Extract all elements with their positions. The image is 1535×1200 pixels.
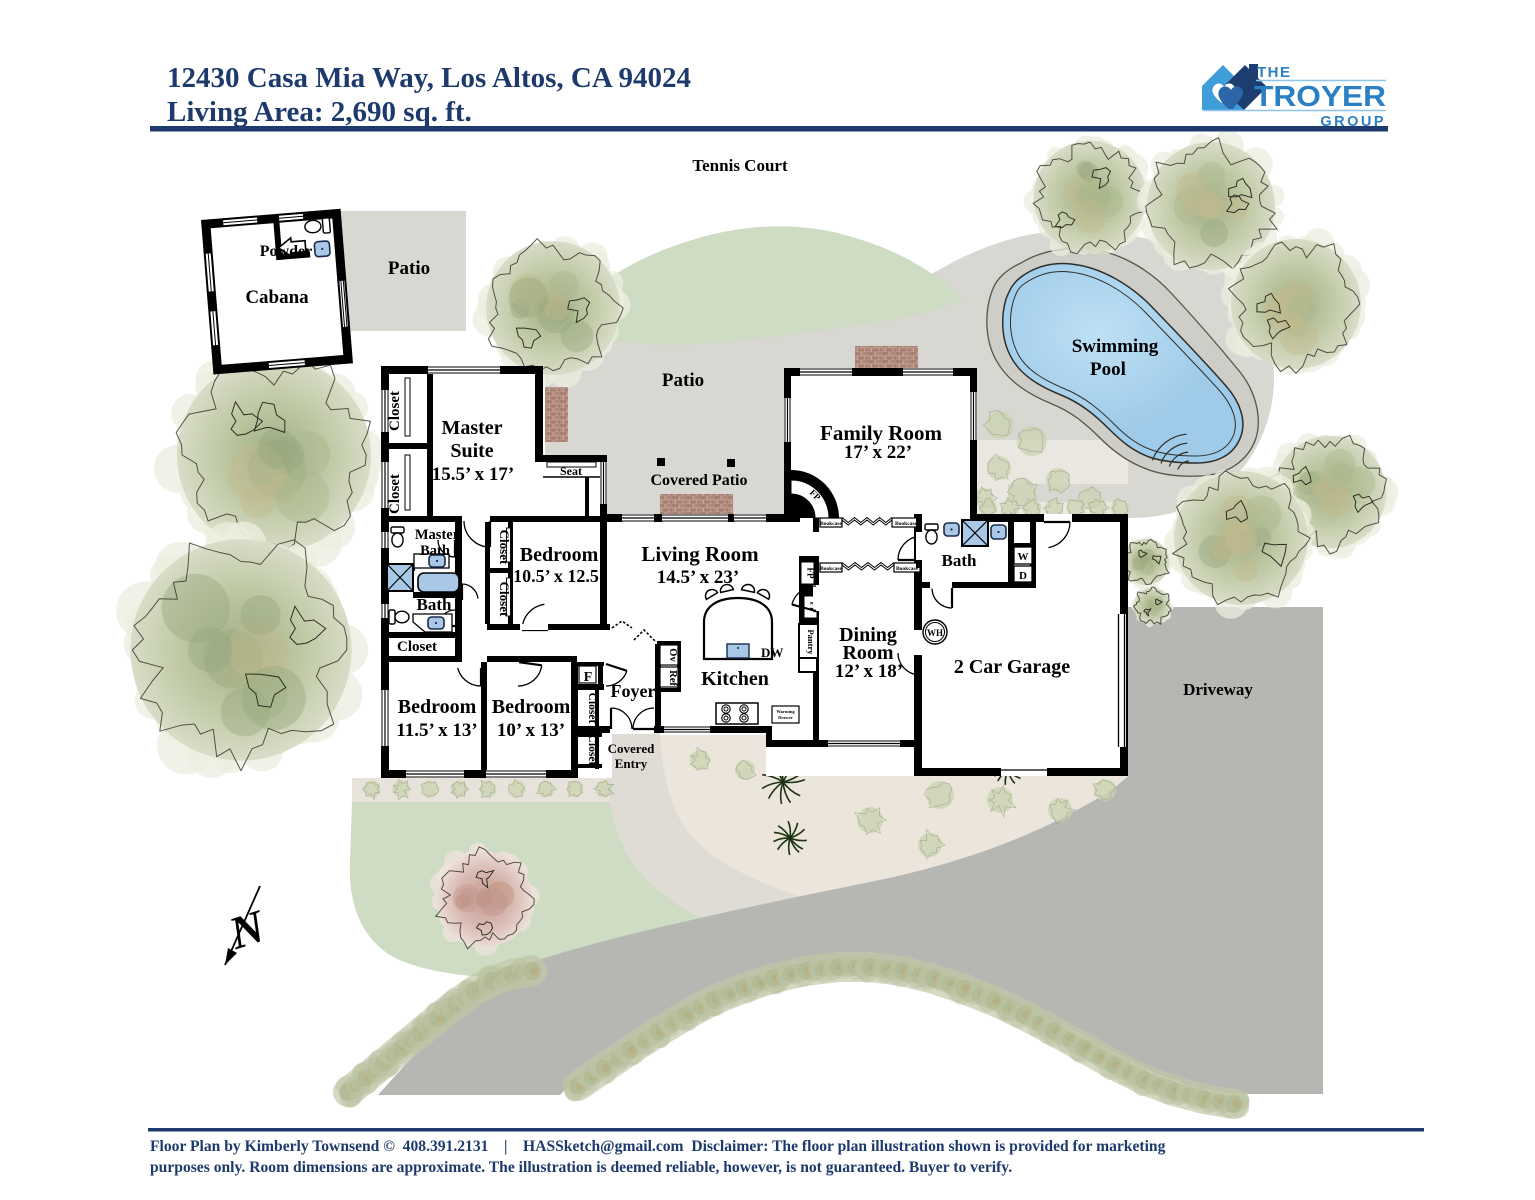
svg-text:2 Car Garage: 2 Car Garage [954, 656, 1070, 678]
svg-text:10’ x 13’: 10’ x 13’ [497, 720, 565, 741]
svg-text:Closet: Closet [497, 582, 512, 617]
svg-text:Kitchen: Kitchen [701, 668, 769, 690]
svg-text:Living Room: Living Room [641, 542, 759, 566]
svg-text:Patio: Patio [662, 370, 704, 391]
svg-text:Suite: Suite [450, 440, 493, 462]
svg-text:Bookcase: Bookcase [820, 521, 843, 527]
svg-text:GROUP: GROUP [1320, 114, 1386, 130]
svg-text:Bath: Bath [417, 595, 453, 614]
svg-text:W: W [1018, 551, 1029, 563]
svg-text:17’ x 22’: 17’ x 22’ [844, 442, 912, 463]
svg-text:12’ x 18’: 12’ x 18’ [835, 661, 903, 682]
svg-text:TROYER: TROYER [1254, 81, 1386, 113]
svg-text:Powder: Powder [260, 243, 312, 260]
svg-text:Master: Master [415, 527, 460, 543]
svg-text:F: F [584, 670, 593, 685]
svg-text:Ov: Ov [667, 648, 678, 662]
svg-text:Covered: Covered [608, 741, 655, 756]
svg-text:DW: DW [761, 645, 783, 660]
svg-text:Bath: Bath [942, 551, 978, 570]
svg-text:Bookcase: Bookcase [820, 566, 843, 572]
svg-text:Closet: Closet [397, 639, 437, 655]
svg-text:Bedroom: Bedroom [492, 696, 571, 718]
svg-text:Seat: Seat [560, 464, 582, 478]
svg-text:Bookcase: Bookcase [895, 521, 918, 527]
svg-text:Entry: Entry [615, 756, 648, 771]
svg-text:Pantry: Pantry [806, 629, 816, 655]
svg-text:Closet: Closet [586, 693, 598, 724]
svg-text:Swimming: Swimming [1072, 336, 1159, 357]
svg-text:15.5’ x 17’: 15.5’ x 17’ [432, 464, 515, 485]
svg-text:Covered Patio: Covered Patio [650, 472, 747, 489]
svg-text:Living Area: 2,690 sq. ft.: Living Area: 2,690 sq. ft. [167, 96, 472, 128]
svg-text:Cabana: Cabana [245, 287, 309, 308]
svg-text:Warming: Warming [776, 709, 795, 714]
svg-text:THE: THE [1257, 64, 1292, 81]
svg-text:FP: FP [806, 568, 816, 579]
svg-text:12430 Casa Mia Way, Los Altos,: 12430 Casa Mia Way, Los Altos, CA 94024 [167, 62, 691, 94]
svg-text:14.5’ x 23’: 14.5’ x 23’ [657, 567, 740, 588]
svg-text:Driveway: Driveway [1183, 680, 1253, 699]
svg-text:11.5’ x 13’: 11.5’ x 13’ [396, 720, 477, 741]
svg-text:Foyer: Foyer [611, 681, 656, 701]
svg-text:Ref: Ref [667, 670, 678, 686]
svg-text:Pool: Pool [1090, 359, 1126, 380]
svg-text:Patio: Patio [388, 258, 430, 279]
svg-text:Closet: Closet [387, 474, 403, 514]
svg-text:Drawer: Drawer [778, 715, 793, 720]
svg-text:Bookcase: Bookcase [896, 566, 919, 572]
svg-text:Floor Plan by Kimberly Townsen: Floor Plan by Kimberly Townsend © 408.39… [150, 1138, 1166, 1155]
svg-text:10.5’ x 12.5’: 10.5’ x 12.5’ [513, 566, 605, 586]
svg-text:WH: WH [927, 628, 943, 638]
svg-text:Bedroom: Bedroom [520, 544, 599, 566]
svg-text:Closet: Closet [586, 735, 598, 766]
svg-text:Bedroom: Bedroom [398, 696, 477, 718]
svg-text:Master: Master [441, 417, 502, 439]
svg-text:purposes only. Room dimensions: purposes only. Room dimensions are appro… [150, 1159, 1012, 1176]
svg-text:D: D [1019, 570, 1027, 582]
svg-text:Closet: Closet [387, 391, 403, 431]
svg-text:Bath: Bath [420, 543, 450, 559]
svg-text:Closet: Closet [497, 530, 512, 565]
svg-text:Tennis Court: Tennis Court [692, 156, 788, 175]
